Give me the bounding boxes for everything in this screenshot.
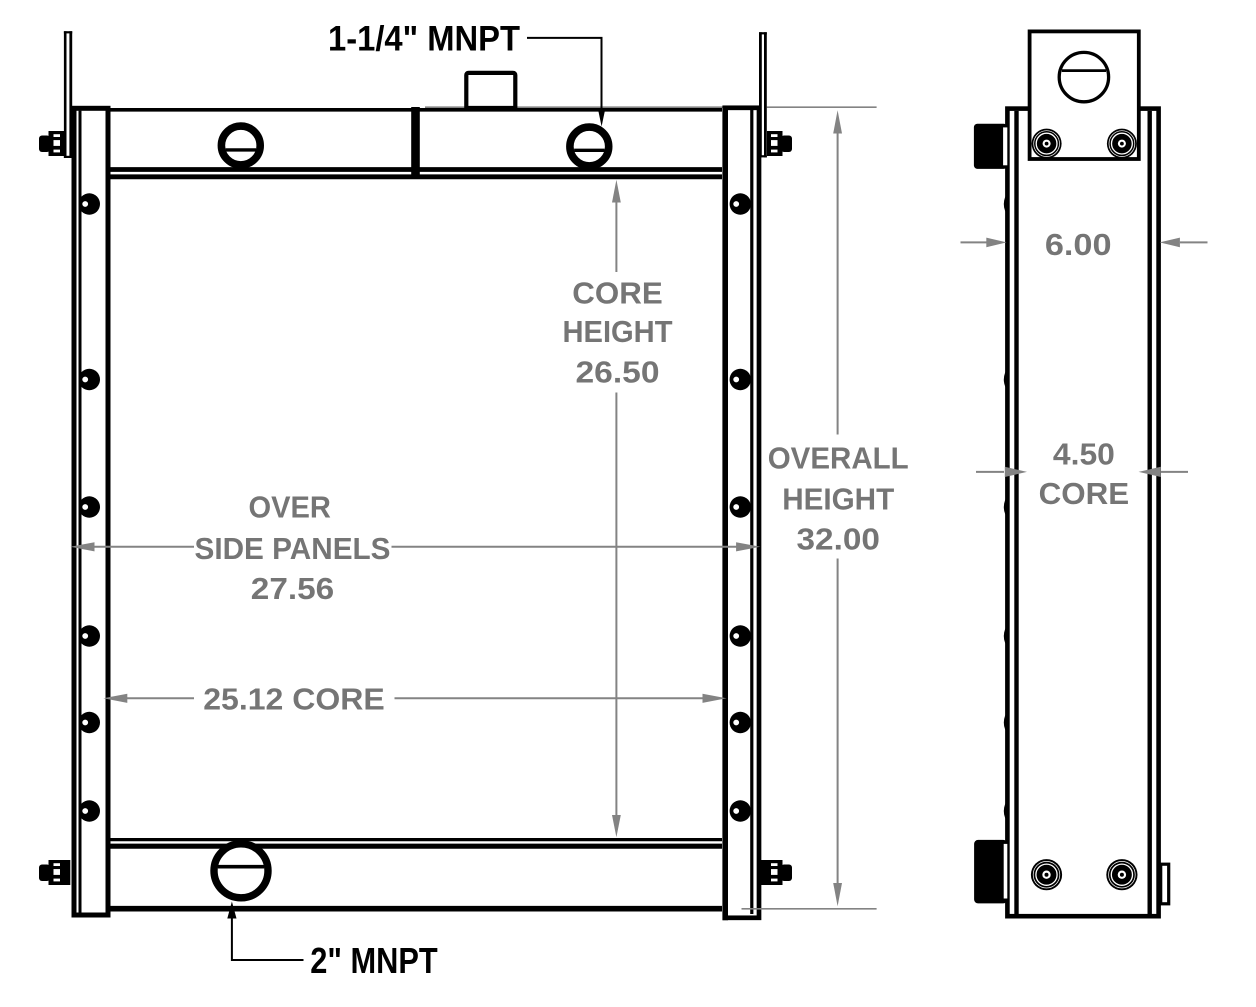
svg-text:2" MNPT: 2" MNPT <box>310 940 438 981</box>
svg-text:27.56: 27.56 <box>251 572 334 606</box>
svg-text:CORE: CORE <box>1039 477 1130 511</box>
svg-text:25.12 CORE: 25.12 CORE <box>203 682 385 716</box>
svg-text:HEIGHT: HEIGHT <box>782 482 894 516</box>
svg-text:CORE: CORE <box>572 276 662 310</box>
svg-text:OVERALL: OVERALL <box>768 441 909 475</box>
svg-text:26.50: 26.50 <box>576 356 660 390</box>
svg-text:6.00: 6.00 <box>1045 228 1112 262</box>
svg-text:1-1/4" MNPT: 1-1/4" MNPT <box>328 19 520 58</box>
svg-text:4.50: 4.50 <box>1053 438 1115 472</box>
svg-text:OVER: OVER <box>249 490 331 524</box>
svg-text:32.00: 32.00 <box>797 523 880 557</box>
svg-text:HEIGHT: HEIGHT <box>563 315 673 349</box>
svg-text:SIDE PANELS: SIDE PANELS <box>195 532 391 566</box>
